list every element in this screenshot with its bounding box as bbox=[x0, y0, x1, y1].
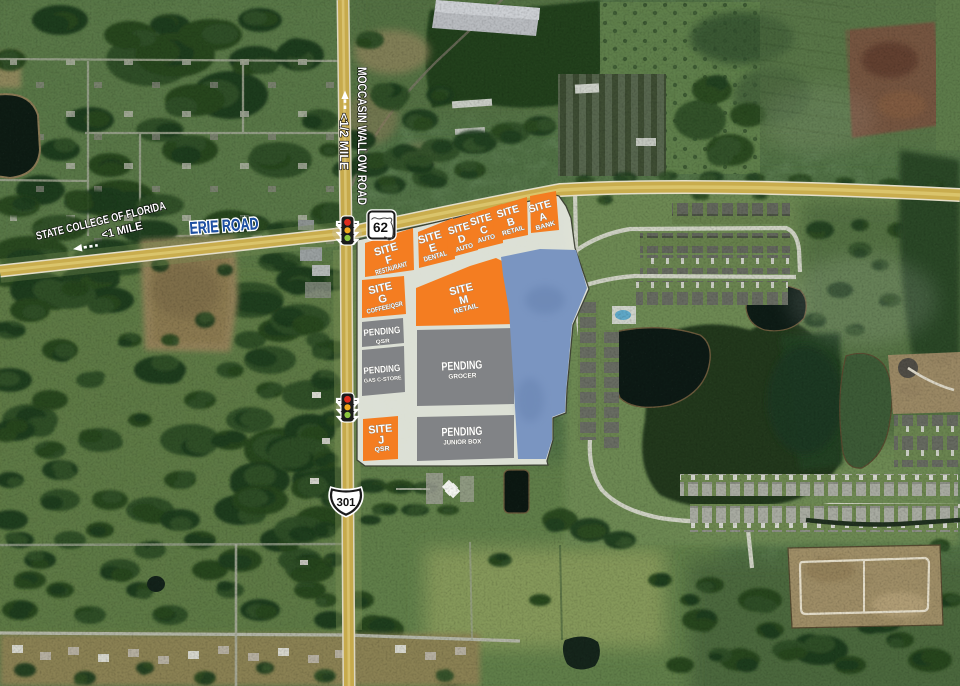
svg-text:PENDING: PENDING bbox=[441, 357, 483, 373]
svg-text:QSR: QSR bbox=[374, 445, 390, 453]
svg-text:PENDING: PENDING bbox=[441, 424, 482, 439]
svg-text:<1/2 MILE: <1/2 MILE bbox=[337, 113, 351, 170]
svg-text:QSR: QSR bbox=[376, 338, 390, 345]
svg-text:62: 62 bbox=[373, 220, 388, 235]
svg-text:301: 301 bbox=[337, 497, 357, 509]
svg-text:GROCER: GROCER bbox=[448, 372, 477, 380]
svg-text:JUNIOR BOX: JUNIOR BOX bbox=[443, 438, 482, 446]
svg-text:MOCCASIN WALLOW ROAD: MOCCASIN WALLOW ROAD bbox=[355, 67, 369, 205]
